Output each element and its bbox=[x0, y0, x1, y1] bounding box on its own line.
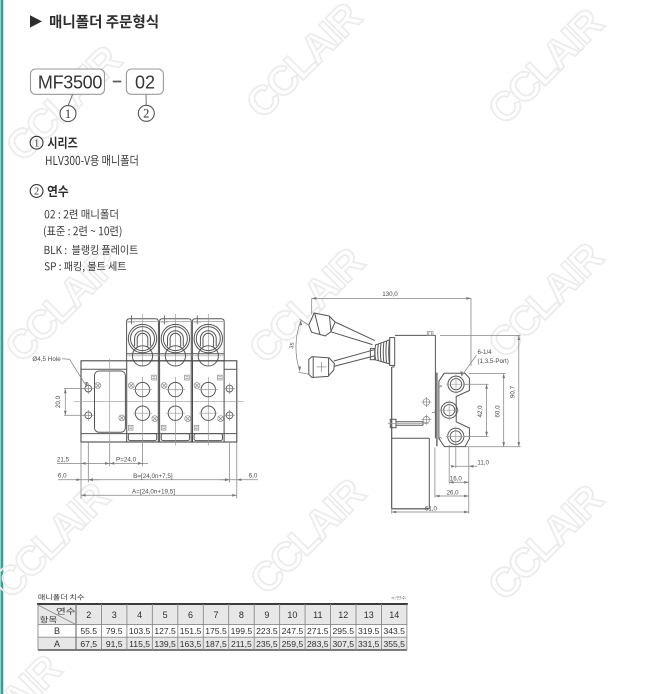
svg-text:02: 02 bbox=[135, 73, 155, 93]
svg-text:1: 1 bbox=[65, 107, 71, 121]
svg-text:4: 4 bbox=[137, 610, 142, 620]
svg-text:6,0: 6,0 bbox=[58, 473, 67, 480]
svg-text:8: 8 bbox=[239, 610, 244, 620]
svg-text:151.5: 151.5 bbox=[180, 626, 202, 636]
svg-text:3: 3 bbox=[438, 437, 443, 440]
svg-text:2: 2 bbox=[86, 610, 91, 620]
svg-text:235,5: 235,5 bbox=[256, 639, 278, 649]
svg-text:283,5: 283,5 bbox=[307, 639, 329, 649]
svg-text:2: 2 bbox=[143, 107, 149, 121]
svg-text:26,0: 26,0 bbox=[447, 489, 460, 496]
svg-text:163,5: 163,5 bbox=[180, 639, 202, 649]
svg-text:B=[24,0n+7,5]: B=[24,0n+7,5] bbox=[133, 473, 173, 480]
svg-text:35: 35 bbox=[289, 342, 296, 349]
svg-text:B: B bbox=[54, 626, 60, 636]
svg-text:103.5: 103.5 bbox=[129, 626, 151, 636]
svg-text:211,5: 211,5 bbox=[231, 639, 252, 649]
svg-text:355,5: 355,5 bbox=[383, 639, 405, 649]
svg-text:115,5: 115,5 bbox=[129, 639, 150, 649]
svg-text:1: 1 bbox=[431, 410, 436, 413]
svg-text:MF3500: MF3500 bbox=[38, 73, 103, 93]
svg-text:271.5: 271.5 bbox=[307, 626, 329, 636]
svg-text:14: 14 bbox=[389, 610, 399, 620]
svg-text:259,5: 259,5 bbox=[282, 639, 304, 649]
svg-text:10: 10 bbox=[287, 610, 297, 620]
svg-text:(1,3,5-Port): (1,3,5-Port) bbox=[478, 358, 509, 365]
svg-text:307,5: 307,5 bbox=[333, 639, 355, 649]
svg-text:6: 6 bbox=[188, 610, 193, 620]
svg-text:79.5: 79.5 bbox=[106, 626, 123, 636]
svg-text:1: 1 bbox=[34, 138, 39, 149]
svg-text:199.5: 199.5 bbox=[231, 626, 253, 636]
svg-text:139,5: 139,5 bbox=[154, 639, 176, 649]
svg-text:11,0: 11,0 bbox=[477, 460, 489, 467]
svg-text:247.5: 247.5 bbox=[282, 626, 304, 636]
svg-text:7: 7 bbox=[213, 610, 218, 620]
svg-text:331,5: 331,5 bbox=[358, 639, 380, 649]
svg-text:223.5: 223.5 bbox=[256, 626, 278, 636]
svg-text:130,0: 130,0 bbox=[382, 291, 398, 298]
svg-text:42,0: 42,0 bbox=[477, 405, 484, 418]
svg-text:295.5: 295.5 bbox=[333, 626, 355, 636]
svg-text:90,7: 90,7 bbox=[509, 385, 516, 398]
svg-text:16,0: 16,0 bbox=[450, 476, 463, 483]
svg-text:2: 2 bbox=[34, 187, 39, 198]
svg-text:A=[24,0n+19,5]: A=[24,0n+19,5] bbox=[132, 489, 175, 496]
svg-text:127.5: 127.5 bbox=[154, 626, 176, 636]
svg-text:187,5: 187,5 bbox=[205, 639, 227, 649]
svg-text:11: 11 bbox=[313, 610, 322, 620]
svg-text:13: 13 bbox=[364, 610, 374, 620]
svg-text:20,0: 20,0 bbox=[55, 395, 62, 408]
svg-text:67,5: 67,5 bbox=[80, 639, 97, 649]
svg-text:60,0: 60,0 bbox=[494, 405, 501, 418]
svg-text:3: 3 bbox=[112, 610, 117, 620]
svg-text:175.5: 175.5 bbox=[205, 626, 227, 636]
svg-text:5: 5 bbox=[163, 610, 168, 620]
svg-text:21,5: 21,5 bbox=[57, 457, 70, 464]
svg-text:343.5: 343.5 bbox=[383, 626, 405, 636]
svg-text:P=24,0: P=24,0 bbox=[116, 457, 137, 464]
svg-text:Ø4,5 Hole: Ø4,5 Hole bbox=[32, 356, 61, 363]
svg-text:6,0: 6,0 bbox=[249, 473, 258, 480]
svg-text:12: 12 bbox=[338, 610, 348, 620]
svg-text:61,0: 61,0 bbox=[425, 505, 438, 512]
svg-text:9: 9 bbox=[264, 610, 269, 620]
svg-text:6-1/4: 6-1/4 bbox=[478, 349, 493, 356]
svg-text:91,5: 91,5 bbox=[106, 639, 123, 649]
svg-text:A: A bbox=[54, 639, 60, 649]
svg-text:5: 5 bbox=[438, 384, 443, 387]
svg-text:319.5: 319.5 bbox=[358, 626, 380, 636]
svg-text:55.5: 55.5 bbox=[80, 626, 97, 636]
